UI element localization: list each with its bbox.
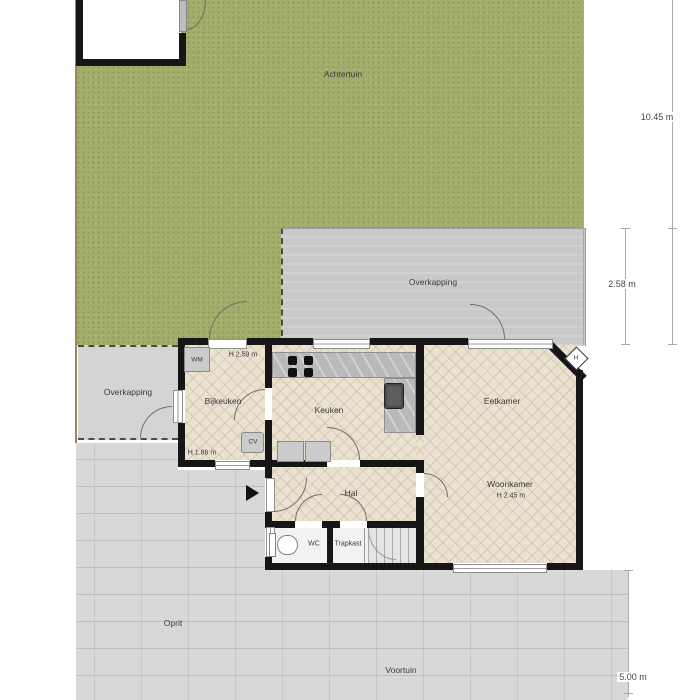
wall-segment xyxy=(327,528,333,563)
wall-segment xyxy=(547,563,583,570)
dimension-tick xyxy=(621,344,630,345)
canopy-center-area xyxy=(281,228,586,346)
eetkamer-woonkamer-floor xyxy=(424,345,576,563)
wall-segment xyxy=(416,497,424,563)
stove-burner xyxy=(304,368,313,377)
wall-segment xyxy=(360,460,424,467)
height-label-woonkamer: H 2.45 m xyxy=(497,493,525,500)
wall-segment xyxy=(265,563,453,570)
door-opening xyxy=(208,339,247,349)
wall-segment xyxy=(247,338,313,345)
room-label-keuken: Keuken xyxy=(315,405,344,415)
dimension-tick xyxy=(624,570,633,571)
shed-interior xyxy=(80,0,181,60)
area-label-achtertuin: Achtertuin xyxy=(324,69,362,79)
dimension-tick xyxy=(624,693,633,694)
room-label-hal: Hal xyxy=(345,488,358,498)
right-boundary-line xyxy=(583,0,584,345)
dimension-label-voortuin: 5.00 m xyxy=(617,672,649,682)
wall-segment xyxy=(265,345,272,388)
stove-burner xyxy=(304,356,313,365)
room-label-eetkamer: Eetkamer xyxy=(484,396,520,406)
wall-segment xyxy=(265,557,272,566)
wall-segment xyxy=(76,59,186,66)
trapkast-stairs-divider xyxy=(364,528,365,563)
wall-segment xyxy=(322,521,340,528)
wall-segment xyxy=(576,370,583,570)
sliding-door xyxy=(468,339,553,349)
wall-segment xyxy=(370,338,468,345)
stove-burner xyxy=(288,368,297,377)
window xyxy=(453,564,547,573)
left-fence-line xyxy=(75,0,77,443)
wall-segment xyxy=(178,423,185,460)
wall-segment xyxy=(179,33,186,63)
room-label-woonkamer: Woonkamer xyxy=(487,479,533,489)
wall-segment xyxy=(178,460,215,467)
dimension-line xyxy=(672,0,673,345)
room-label-trapkast: Trapkast xyxy=(335,541,362,548)
kitchen-cabinet xyxy=(305,441,331,462)
wall-segment xyxy=(416,345,424,435)
h-marker-label: H xyxy=(574,355,579,362)
dimension-label-achtertuin: 10.45 m xyxy=(639,112,676,122)
height-label-bijkeuken-top: H 2.59 m xyxy=(229,352,257,359)
floorplan-canvas: Achtertuin Overkapping Overkapping Oprit… xyxy=(0,0,700,700)
area-label-overkapping-center: Overkapping xyxy=(409,277,457,287)
window xyxy=(215,461,250,470)
dimension-tick xyxy=(621,228,630,229)
dimension-tick xyxy=(668,344,677,345)
kitchen-cabinet xyxy=(277,441,304,462)
room-label-bijkeuken: Bijkeuken xyxy=(205,396,242,406)
stove-burner xyxy=(288,356,297,365)
dimension-tick xyxy=(668,228,677,229)
window xyxy=(313,339,370,349)
toilet-bowl xyxy=(277,535,298,555)
entrance-arrow-icon xyxy=(246,485,259,501)
height-label-bijkeuken-bottom: H 1.86 m xyxy=(188,450,216,457)
area-label-overkapping-left: Overkapping xyxy=(104,387,152,397)
kitchen-sink-basin xyxy=(387,386,401,406)
dimension-label-overkapping: 2.58 m xyxy=(606,279,638,289)
toilet-tank xyxy=(269,533,276,557)
fixture-label-wm: WM xyxy=(191,357,203,364)
area-label-oprit: Oprit xyxy=(164,618,182,628)
window xyxy=(173,390,183,423)
area-label-voortuin: Voortuin xyxy=(385,665,416,675)
fixture-label-cv: CV xyxy=(248,439,257,446)
room-label-wc: WC xyxy=(308,541,320,548)
wall-segment xyxy=(76,0,83,66)
passage-floor xyxy=(416,435,424,460)
wall-segment xyxy=(367,521,424,528)
wall-segment xyxy=(265,420,272,478)
